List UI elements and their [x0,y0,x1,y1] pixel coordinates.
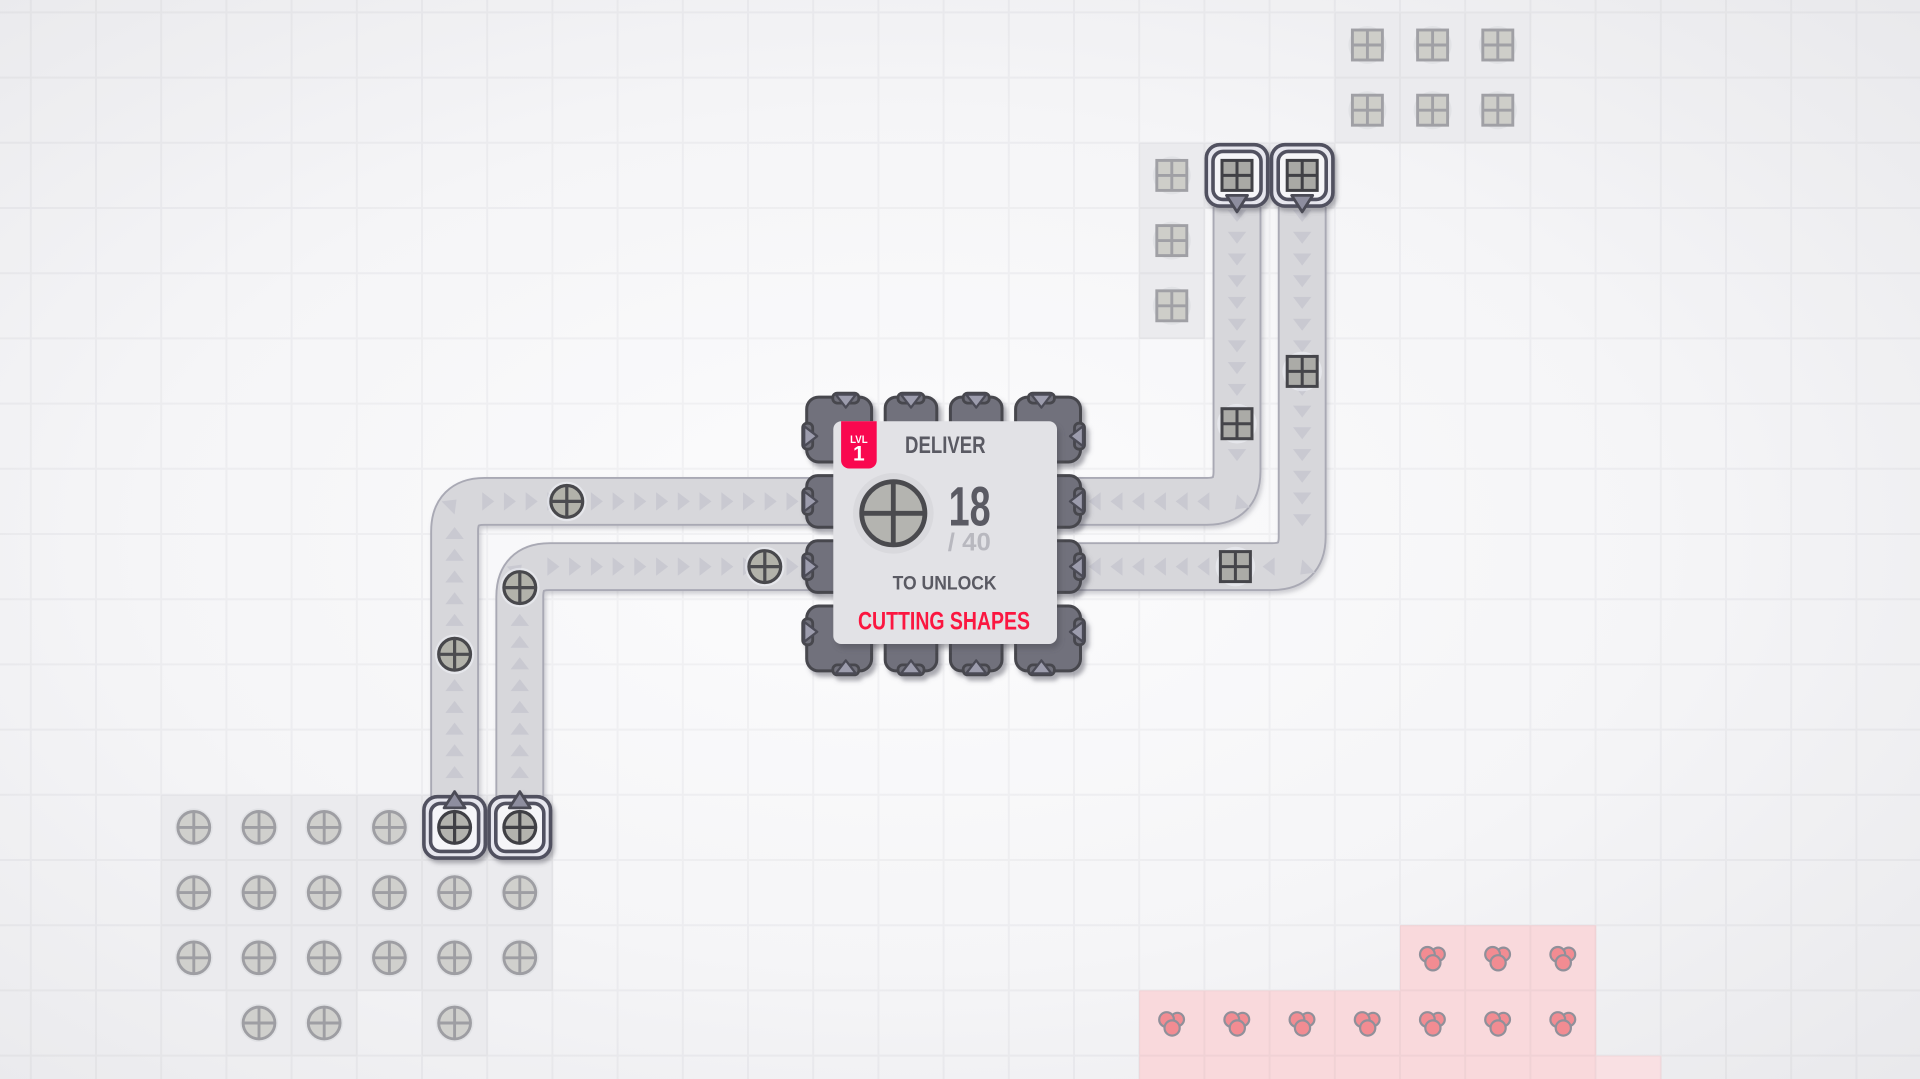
svg-text:CUTTING SHAPES: CUTTING SHAPES [858,608,1030,636]
svg-text:DELIVER: DELIVER [905,432,986,459]
svg-text:1: 1 [853,443,865,466]
svg-text:/ 40: / 40 [948,528,991,556]
svg-text:TO UNLOCK: TO UNLOCK [893,573,997,594]
